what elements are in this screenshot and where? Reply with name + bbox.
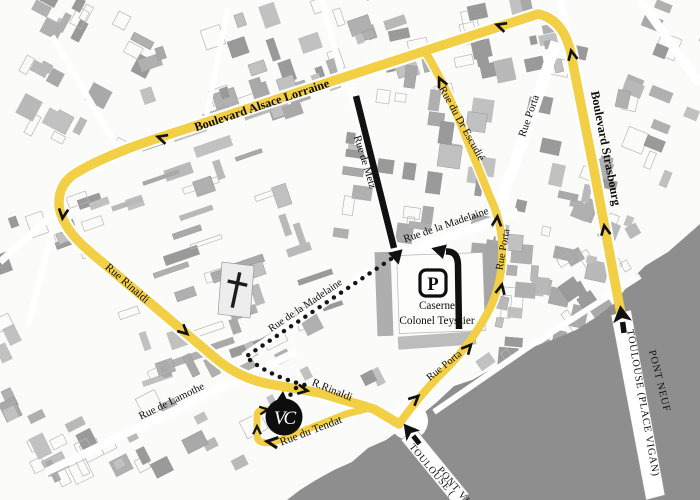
caserne-label-line2: Colonel Teyssier — [399, 315, 474, 327]
building — [425, 171, 443, 195]
building — [507, 307, 523, 319]
church — [218, 262, 254, 318]
building — [402, 162, 417, 181]
parking-icon-letter: P — [427, 275, 438, 295]
building — [377, 158, 395, 174]
building — [437, 143, 463, 169]
building — [514, 282, 536, 299]
building — [505, 337, 523, 347]
city-map: VC P Caserne Colonel Teyssier Boulevard … — [0, 0, 700, 500]
hotel-logo-monogram: VC — [274, 408, 297, 429]
caserne-label-line1: Caserne — [419, 300, 455, 312]
parking-icon: P — [420, 270, 446, 296]
